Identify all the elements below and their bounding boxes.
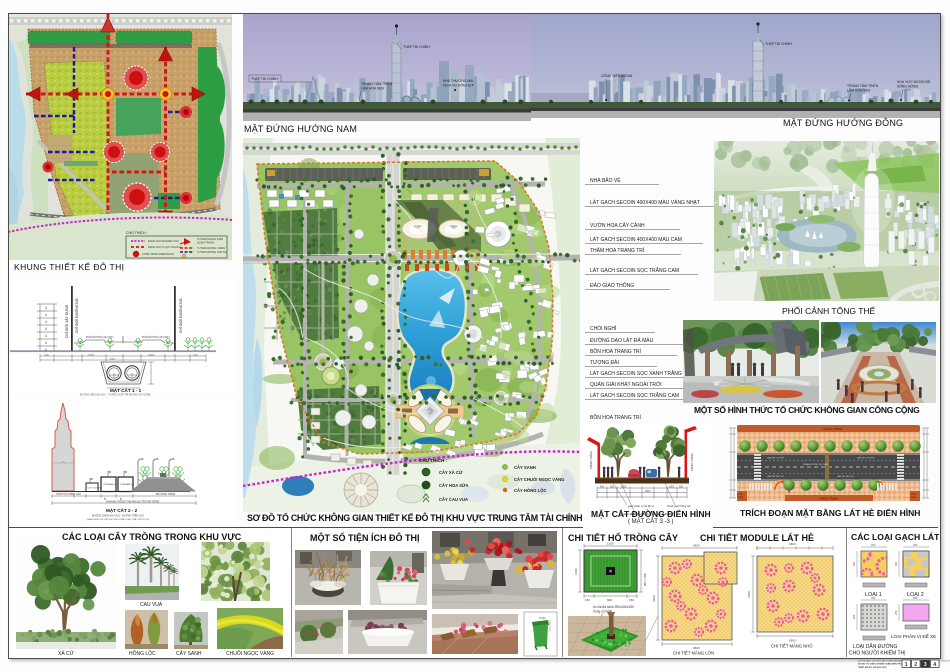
svg-text:QUAN TRONG: QUAN TRONG (197, 240, 215, 244)
svg-text:KHU VỰC NGOÀI ĐÊ: KHU VỰC NGOÀI ĐÊ (897, 79, 931, 84)
svg-text:KHU THƯƠNG MẠI: KHU THƯƠNG MẠI (443, 79, 473, 83)
svg-text:1: 1 (905, 662, 908, 668)
svg-text:THÁP TÀI CHÍNH: THÁP TÀI CHÍNH (56, 493, 75, 496)
svg-text:400: 400 (600, 486, 605, 489)
svg-text:400 x 400: 400 x 400 (643, 573, 647, 587)
svg-text:XÀ CỪ: XÀ CỪ (58, 650, 75, 657)
svg-text:1100: 1100 (574, 568, 578, 575)
svg-text:3000: 3000 (621, 486, 627, 489)
svg-text:TUYEN KHONG GIAN: TUYEN KHONG GIAN (197, 237, 223, 241)
svg-text:900: 900 (607, 598, 612, 602)
svg-text:1800: 1800 (789, 638, 796, 642)
svg-text:CONG TRINH DIEM NHAN: CONG TRINH DIEM NHAN (142, 252, 174, 256)
svg-text:TRÌNH: TRÌNH (911, 496, 917, 499)
svg-text:THÁP TÀI CHÍNH: THÁP TÀI CHÍNH (765, 42, 792, 46)
svg-text:CÔNG: CÔNG (738, 493, 744, 496)
svg-text:CHÚ THÍCH :: CHÚ THÍCH : (126, 230, 148, 235)
svg-text:MẶT CẮT 1 - 1: MẶT CẮT 1 - 1 (110, 386, 142, 393)
svg-text:ĐƯỜNG LIÊN KHU VỰC - TUYẾN CÓ: ĐƯỜNG LIÊN KHU VỰC - TUYẾN CÓ BỐ TRÍ ĐƯỜ… (80, 394, 151, 396)
svg-text:1200: 1200 (607, 542, 614, 546)
svg-text:VƯỜN HOA CÂY CẢNH: VƯỜN HOA CÂY CẢNH (590, 222, 645, 229)
svg-text:CÔNG TRÌNH: CÔNG TRÌNH (689, 453, 694, 471)
svg-text:QUÁN GIẢI KHÁT NGOÀI TRỜI: QUÁN GIẢI KHÁT NGOÀI TRỜI (590, 381, 662, 388)
svg-text:LÃM HOA SEN: LÃM HOA SEN (361, 86, 385, 91)
svg-text:300: 300 (894, 561, 898, 566)
svg-text:LÁT GẠCH SECOIN 400X400 MÀU VÀ: LÁT GẠCH SECOIN 400X400 MÀU VÀNG NHẠT (590, 199, 700, 206)
svg-text:CAU VUA: CAU VUA (140, 602, 163, 608)
svg-text:LOẠI PHÂN VỊ ĐỂ XE: LOẠI PHÂN VỊ ĐỂ XE (891, 633, 936, 639)
svg-text:4: 4 (45, 320, 47, 324)
svg-text:BỜ SÔNG HỒNG: BỜ SÔNG HỒNG (156, 493, 175, 496)
svg-text:gạch phân vị nơi để xe: gạch phân vị nơi để xe (628, 504, 655, 508)
svg-text:CÂY XÀ CỪ: CÂY XÀ CỪ (439, 470, 463, 475)
svg-text:HỒNG LỘC: HỒNG LỘC (129, 650, 156, 657)
svg-text:RANH GIOI O QUY HOACH: RANH GIOI O QUY HOACH (148, 245, 181, 249)
svg-text:LÀN XE THÔ SƠ: LÀN XE THÔ SƠ (837, 475, 854, 478)
svg-text:CÔNG TRÌNH: CÔNG TRÌNH (588, 451, 593, 469)
svg-text:BỒN HOA TRANG TRÍ: BỒN HOA TRANG TRÍ (590, 414, 642, 420)
svg-text:3600: 3600 (693, 646, 700, 650)
svg-text:600: 600 (679, 486, 684, 489)
svg-text:250: 250 (894, 610, 898, 615)
svg-text:PHẦN ĐƯỜNG XE CHẠY: PHẦN ĐƯỜNG XE CHẠY (142, 336, 170, 339)
svg-text:10500: 10500 (148, 355, 155, 357)
svg-text:THÁP TÀI CHÍNH: THÁP TÀI CHÍNH (403, 45, 430, 49)
svg-text:CỬA HẦM SB: CỬA HẦM SB (103, 483, 117, 486)
svg-text:3600: 3600 (693, 544, 700, 548)
svg-text:3000: 3000 (110, 358, 116, 360)
svg-text:CÁC LOẠI CÂY TRỒNG TRONG KHU V: CÁC LOẠI CÂY TRỒNG TRONG KHU VỰC (62, 531, 242, 542)
svg-text:4: 4 (45, 306, 47, 310)
svg-text:TRÌNH: TRÌNH (738, 496, 744, 499)
svg-text:300: 300 (871, 596, 876, 600)
svg-text:MỘT SỐ TIỆN ÍCH ĐÔ THỊ: MỘT SỐ TIỆN ÍCH ĐÔ THỊ (310, 532, 420, 543)
svg-text:CÂY CHUỖI NGỌC VÀNG: CÂY CHUỖI NGỌC VÀNG (514, 477, 564, 482)
svg-text:3000: 3000 (669, 486, 675, 489)
svg-text:Φ 900: Φ 900 (539, 617, 546, 620)
svg-text:PHẦN ĐƯỜNG XE CHẠY: PHẦN ĐƯỜNG XE CHẠY (803, 463, 829, 466)
svg-text:LÀN XE CƠ GIỚI: LÀN XE CƠ GIỚI (767, 457, 785, 460)
svg-text:4: 4 (933, 662, 936, 668)
svg-text:VỈA HÈ: VỈA HÈ (166, 342, 174, 345)
svg-text:DỊCH VỤ HỖN HỢP: DỊCH VỤ HỖN HỢP (443, 83, 475, 88)
svg-text:300: 300 (852, 561, 856, 566)
svg-text:CHÚ THÍCH :: CHÚ THÍCH : (419, 456, 448, 463)
svg-text:3600: 3600 (652, 595, 656, 602)
svg-text:4: 4 (45, 327, 47, 331)
svg-text:CÔNG VIÊN ASEAN: CÔNG VIÊN ASEAN (601, 73, 633, 78)
svg-text:CHỈ GIỚI ĐƯỜNG ĐỎ: CHỈ GIỚI ĐƯỜNG ĐỎ (74, 298, 79, 333)
svg-text:1800: 1800 (789, 542, 796, 546)
svg-text:1000: 1000 (44, 355, 50, 357)
svg-text:CHI TIẾT HỐ TRỒNG CÂY: CHI TIẾT HỐ TRỒNG CÂY (568, 532, 678, 543)
svg-text:300: 300 (913, 596, 918, 600)
svg-text:THIẾT KẾ ĐÔ THỊ KHU VỰC: THIẾT KẾ ĐÔ THỊ KHU VỰC (858, 666, 887, 669)
svg-text:CÂY SANH: CÂY SANH (176, 650, 202, 657)
svg-text:BỒN HOA TRANG TRÍ: BỒN HOA TRANG TRÍ (590, 348, 642, 355)
svg-text:KHOẢNG THÔNG THOÁNG DỰ TRỮ MỞ: KHOẢNG THÔNG THOÁNG DỰ TRỮ MỞ RỘNG (106, 500, 159, 503)
svg-text:LÃM HOA SEN: LÃM HOA SEN (847, 88, 871, 93)
svg-text:LÀN XE CƠ GIỚI: LÀN XE CƠ GIỚI (857, 457, 875, 460)
svg-text:LÁT GẠCH SECOIN 400X400 MÀU CA: LÁT GẠCH SECOIN 400X400 MÀU CAM (590, 236, 682, 243)
svg-text:CÂY SANH: CÂY SANH (514, 465, 536, 470)
svg-text:CHI TIẾT MODULE LÁT HÈ: CHI TIẾT MODULE LÁT HÈ (700, 533, 814, 543)
svg-text:TRUNG TÂM TRIỂN: TRUNG TÂM TRIỂN (361, 81, 393, 86)
svg-text:10500: 10500 (88, 355, 95, 357)
svg-text:LÁT GẠCH SECOIN SỌC TRẮNG CAM: LÁT GẠCH SECOIN SỌC TRẮNG CAM (590, 266, 679, 274)
svg-text:LÁT GẠCH SECOIN SỌC XANH TRẮNG: LÁT GẠCH SECOIN SỌC XANH TRẮNG (590, 369, 682, 377)
svg-text:4: 4 (45, 313, 47, 317)
svg-text:TUYEN DUONG CAP DO: TUYEN DUONG CAP DO (197, 250, 227, 254)
svg-text:CÔNG TRÌNH: CÔNG TRÌNH (819, 496, 838, 501)
svg-text:THẢM HOA TRANG TRÍ: THẢM HOA TRANG TRÍ (590, 247, 645, 254)
svg-text:LOẠI DẪN ĐƯỜNG: LOẠI DẪN ĐƯỜNG (853, 643, 898, 650)
svg-text:CHỈ GIỚI XÂY DỰNG: CHỈ GIỚI XÂY DỰNG (64, 304, 69, 338)
svg-text:CỐT T.LỬNG: CỐT T.LỬNG (88, 487, 102, 490)
svg-text:CHÒI NGHỈ: CHÒI NGHỈ (590, 325, 617, 332)
svg-text:CHỈ GIỚI ĐƯỜNG ĐỎ: CHỈ GIỚI ĐƯỜNG ĐỎ (178, 298, 183, 333)
svg-text:1800: 1800 (747, 591, 751, 598)
svg-text:CHO NGƯỜI KHIẾM THỊ: CHO NGƯỜI KHIẾM THỊ (849, 650, 906, 657)
svg-text:MẶT CẮT 2 - 2: MẶT CẮT 2 - 2 (106, 506, 138, 513)
svg-text:300: 300 (871, 543, 876, 547)
svg-text:CHI TIẾT MẢNG NHỎ: CHI TIẾT MẢNG NHỎ (771, 644, 813, 649)
svg-text:ĐẢO GIAO THÔNG: ĐẢO GIAO THÔNG (590, 282, 634, 289)
svg-text:4: 4 (45, 334, 47, 338)
svg-text:CỬA HẦM SB: CỬA HẦM SB (120, 483, 134, 486)
svg-text:LÁT GẠCH SECOIN SỌC TRẮNG CAM: LÁT GẠCH SECOIN SỌC TRẮNG CAM (590, 391, 679, 399)
svg-text:CÂY CAU VUA: CÂY CAU VUA (439, 497, 468, 502)
svg-text:THÁP TÀI CHÍNH: THÁP TÀI CHÍNH (251, 77, 278, 81)
svg-text:600: 600 (610, 486, 615, 489)
svg-text:300: 300 (852, 614, 856, 619)
svg-text:LÀN XE THÔ SƠ: LÀN XE THÔ SƠ (767, 475, 784, 478)
svg-text:3: 3 (924, 662, 927, 668)
svg-text:RANH GIOI NGHIEN CUU: RANH GIOI NGHIEN CUU (148, 239, 179, 243)
svg-text:SÔNG HỒNG: SÔNG HỒNG (897, 84, 918, 89)
svg-text:ĐƯỜNG DẠO LÁT ĐÁ MÀU: ĐƯỜNG DẠO LÁT ĐÁ MÀU (590, 337, 654, 344)
svg-text:(THAM CHIẾU TÀI LIỆU PHƯƠNG PH: (THAM CHIẾU TÀI LIỆU PHƯƠNG PHÁP LUẬN TH… (86, 518, 149, 521)
svg-text:CÔNG: CÔNG (911, 493, 917, 496)
svg-text:TUYEN DUONG CHINH: TUYEN DUONG CHINH (197, 246, 225, 250)
svg-text:150: 150 (629, 598, 634, 602)
svg-text:CHUỖI NGỌC VÀNG: CHUỖI NGỌC VÀNG (226, 650, 274, 657)
svg-text:CÂY HỒNG LỘC: CÂY HỒNG LỘC (514, 488, 547, 493)
svg-text:TƯỢNG ĐÀI: TƯỢNG ĐÀI (590, 359, 619, 366)
svg-text:CÁC LOẠI GẠCH LÁT: CÁC LOẠI GẠCH LÁT (851, 532, 939, 542)
svg-text:CÂY HOA SỮA: CÂY HOA SỮA (439, 483, 469, 488)
svg-text:NHÀ BẢO VỆ: NHÀ BẢO VỆ (590, 176, 621, 184)
svg-text:CHI TIẾT MẢNG LỚN: CHI TIẾT MẢNG LỚN (673, 651, 714, 656)
svg-text:CÔNG TRÌNH: CÔNG TRÌNH (823, 426, 842, 431)
svg-text:hè lát gạch bông nổi: hè lát gạch bông nổi (667, 504, 691, 508)
svg-text:4: 4 (45, 341, 47, 345)
svg-text:8000: 8000 (645, 490, 651, 493)
svg-text:ĐƯỜNG CHÍNH KHU VỰC - ĐƯỜNG TR: ĐƯỜNG CHÍNH KHU VỰC - ĐƯỜNG TRÊN CAO (92, 515, 144, 518)
svg-text:bó vỉa đá xanh 250x150x150: bó vỉa đá xanh 250x150x150 (593, 605, 634, 609)
svg-text:CẦU: CẦU (76, 493, 81, 496)
svg-text:TRUNG TÂM TRIỂN: TRUNG TÂM TRIỂN (847, 83, 879, 88)
svg-text:300: 300 (913, 543, 918, 547)
svg-text:1000: 1000 (193, 355, 199, 357)
svg-text:2: 2 (914, 662, 917, 668)
svg-text:150: 150 (585, 598, 590, 602)
